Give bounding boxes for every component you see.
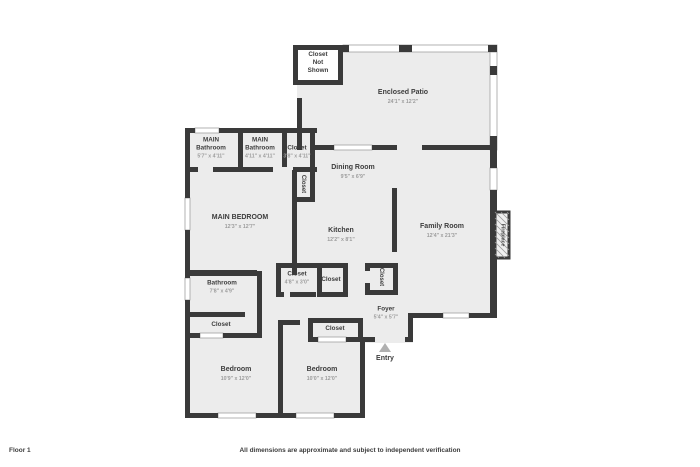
room-label: Foyer	[374, 305, 399, 313]
entry-label: Entry	[376, 355, 394, 362]
room-dims: 24'1" x 12'2"	[378, 99, 428, 106]
room-bedroom-left: Bedroom 10'9" x 12'0"	[221, 366, 252, 382]
room-main-bedroom: MAIN BEDROOM 12'3" x 12'7"	[212, 214, 268, 230]
room-dims: 12'3" x 12'7"	[212, 224, 268, 231]
room-label: MAIN	[196, 136, 226, 144]
room-main-bathroom-1: MAIN Bathroom 5'7" x 4'11"	[196, 136, 226, 159]
room-label: Closet	[283, 144, 310, 152]
room-label: Closet	[376, 268, 384, 286]
room-kitchen: Kitchen 12'2" x 8'1"	[327, 227, 355, 243]
room-dims: 4'11" x 4'11"	[245, 153, 275, 160]
room-closet-bathroom: Closet	[211, 321, 230, 329]
room-label: MAIN	[245, 136, 275, 144]
room-label: Dining Room	[331, 164, 375, 173]
room-dining-room: Dining Room 9'5" x 6'9"	[331, 164, 375, 180]
room-label: Bathroom	[196, 144, 226, 152]
floorplan-page: Closet Not Shown Enclosed Patio 24'1" x …	[0, 0, 700, 467]
room-dims: 3'8" x 4'11"	[283, 153, 310, 160]
room-bedroom-right: Bedroom 10'0" x 12'0"	[307, 366, 338, 382]
entry-arrow-icon	[379, 343, 391, 352]
disclaimer-text: All dimensions are approximate and subje…	[0, 447, 700, 454]
room-bathroom: Bathroom 7'8" x 4'9"	[207, 279, 237, 294]
room-closet-hall: Closet	[325, 325, 344, 333]
room-closet-mid-right: Closet	[321, 276, 340, 284]
room-dims: 10'9" x 12'0"	[221, 376, 252, 383]
room-label: Closet	[285, 270, 310, 278]
room-main-bathroom-2: MAIN Bathroom 4'11" x 4'11"	[245, 136, 275, 159]
room-label: MAIN BEDROOM	[212, 214, 268, 223]
room-dims: 4'8" x 3'0"	[285, 279, 310, 286]
room-closet-foyer: Closet	[376, 268, 384, 286]
room-dims: 12'4" x 21'3"	[420, 233, 464, 240]
room-label: Closet	[321, 276, 340, 284]
room-closet-top: Closet 3'8" x 4'11"	[283, 144, 310, 159]
room-dims: 12'2" x 8'1"	[327, 237, 355, 244]
room-dims: 10'0" x 12'0"	[307, 376, 338, 383]
room-label: Bathroom	[245, 144, 275, 152]
room-label: Family Room	[420, 223, 464, 232]
room-fireplace: Fireplace	[499, 224, 506, 247]
room-dims: 7'8" x 4'9"	[207, 288, 237, 295]
room-label: Shown	[308, 67, 329, 75]
room-enclosed-patio: Enclosed Patio 24'1" x 12'2"	[378, 89, 428, 105]
room-dims: 5'7" x 4'11"	[196, 153, 226, 160]
room-label: Closet	[298, 175, 306, 193]
room-label: Kitchen	[327, 227, 355, 236]
room-closet-mid-left: Closet 4'8" x 3'0"	[285, 270, 310, 285]
room-label: Closet	[325, 325, 344, 333]
room-label: Closet	[308, 51, 329, 59]
room-dims: 5'4" x 5'7"	[374, 314, 399, 321]
room-closet-vertical-upper: Closet	[298, 175, 306, 193]
room-label: Bedroom	[221, 366, 252, 375]
room-label: Fireplace	[499, 224, 506, 247]
room-label: Not	[308, 59, 329, 67]
room-label: Bedroom	[307, 366, 338, 375]
room-foyer: Foyer 5'4" x 5'7"	[374, 305, 399, 320]
room-dims: 9'5" x 6'9"	[331, 174, 375, 181]
room-label: Closet	[211, 321, 230, 329]
room-family-room: Family Room 12'4" x 21'3"	[420, 223, 464, 239]
room-closet-not-shown: Closet Not Shown	[308, 51, 329, 75]
room-label: Enclosed Patio	[378, 89, 428, 98]
room-label: Bathroom	[207, 279, 237, 287]
